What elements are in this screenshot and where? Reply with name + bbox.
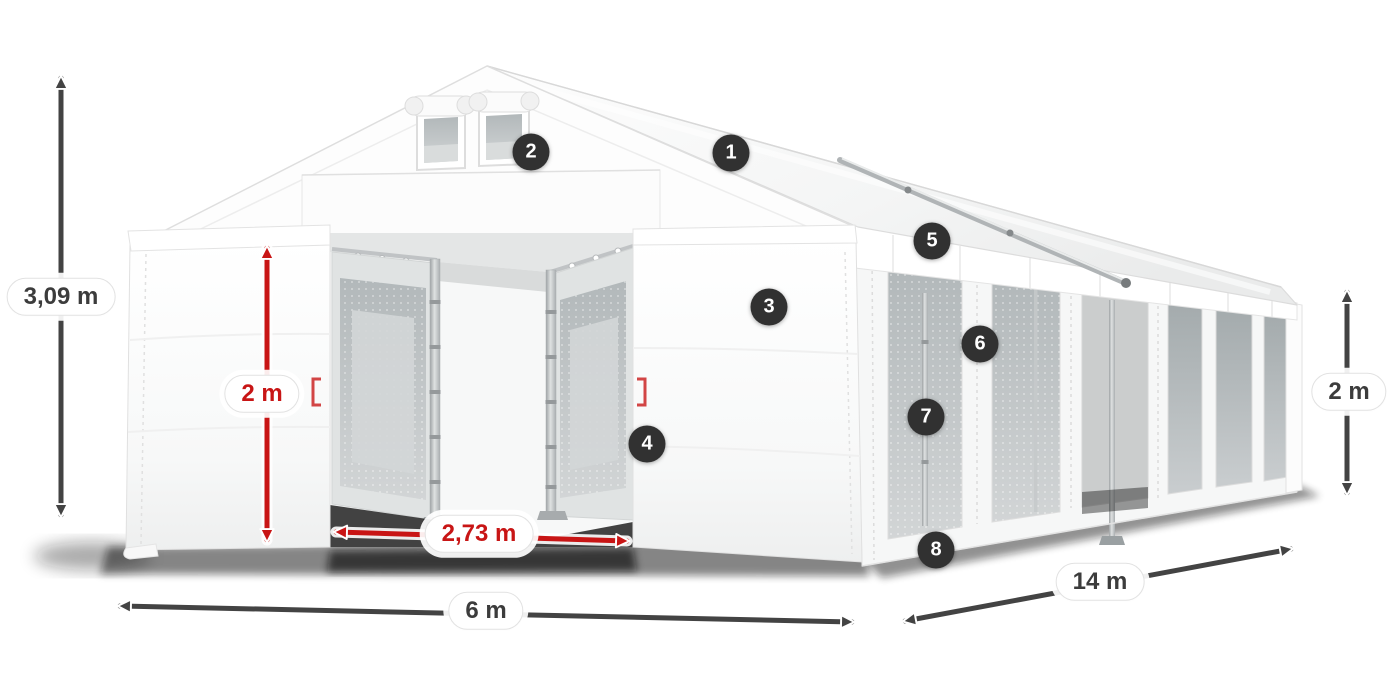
entrance-door-left	[332, 249, 452, 526]
tent-illustration	[0, 0, 1400, 700]
front-right-eave-band	[633, 225, 857, 245]
entrance-opening	[330, 233, 633, 547]
side-window-4	[1216, 310, 1252, 487]
entrance-header	[302, 170, 660, 238]
callout-badge-7[interactable]: 7	[908, 399, 945, 436]
dim-label-entrance-height: 2 m	[224, 375, 299, 413]
dim-label-side-height: 2 m	[1311, 373, 1386, 411]
side-window-5	[1264, 315, 1288, 481]
dim-label-front-width: 6 m	[448, 592, 523, 630]
callout-badge-6[interactable]: 6	[962, 326, 999, 363]
side-window-3	[1168, 304, 1202, 494]
pole-connector	[1121, 278, 1131, 288]
callout-badge-1[interactable]: 1	[713, 135, 750, 172]
front-right-wall	[633, 225, 862, 562]
callout-badge-4[interactable]: 4	[629, 426, 666, 463]
door-pole-right	[546, 270, 556, 518]
entrance-door-right	[537, 246, 633, 520]
callout-badge-2[interactable]: 2	[513, 134, 550, 171]
dim-label-side-length: 14 m	[1056, 563, 1145, 601]
corner-post	[1286, 302, 1302, 493]
dim-label-entrance-width: 2,73 m	[425, 515, 534, 553]
callout-badge-8[interactable]: 8	[918, 532, 955, 569]
callout-badge-5[interactable]: 5	[914, 223, 951, 260]
dim-label-total-height: 3,09 m	[7, 278, 116, 316]
callout-badge-3[interactable]: 3	[751, 289, 788, 326]
tent-dimension-diagram: 3,09 m 2 m 2,73 m 6 m 14 m 2 m 1 2 3 4 5…	[0, 0, 1400, 700]
